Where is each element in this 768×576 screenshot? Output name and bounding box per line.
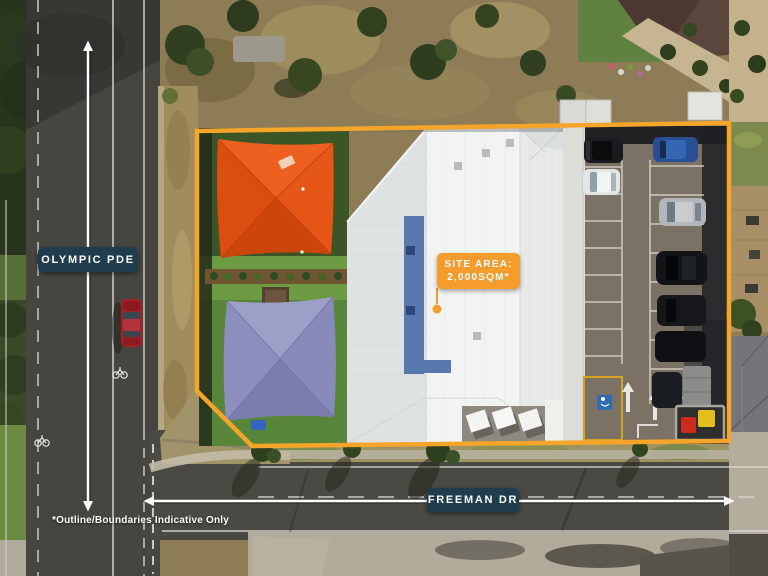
site-area-line2: 2,000SQM* [447,271,510,285]
orange-shade-sail [217,139,334,258]
courtyard-blue-wall [404,216,424,374]
purple-shade-sail [224,297,336,421]
street-label-olympic-pde: OLYMPIC PDE [38,247,138,272]
aerial-photo-canvas [0,0,768,576]
site-area-line1: SITE AREA: [444,258,512,272]
olympic-pde-road [6,0,160,576]
boundary-disclaimer-text: *Outline/Boundaries Indicative Only [52,515,229,526]
red-bin [681,417,696,433]
yellow-bin [698,410,715,427]
building-walkway [563,128,585,444]
street-label-freeman-dr: FREEMAN DR [427,488,519,512]
site-area-badge: SITE AREA: 2,000SQM* [437,253,520,289]
red-car [112,299,142,354]
bin-enclosure [676,406,724,440]
aerial-site-photo: OLYMPIC PDE FREEMAN DR SITE AREA: 2,000S… [0,0,768,576]
parking-lot [583,126,729,444]
